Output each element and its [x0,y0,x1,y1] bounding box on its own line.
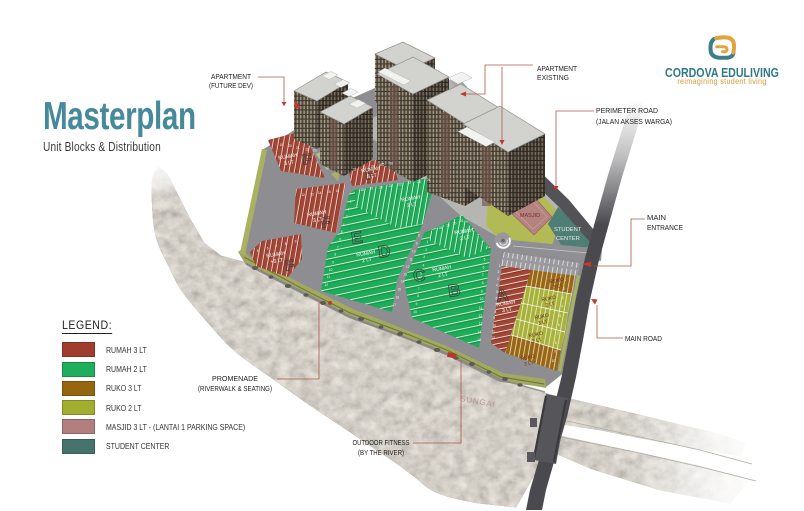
svg-text:10: 10 [480,297,484,301]
svg-text:9: 9 [493,316,495,320]
svg-text:4: 4 [343,223,345,227]
svg-text:15: 15 [477,338,481,342]
svg-text:23: 23 [313,149,317,153]
svg-text:B: B [447,280,462,301]
svg-text:9: 9 [295,240,297,244]
svg-text:11: 11 [479,306,483,310]
svg-text:4: 4 [561,305,563,309]
svg-text:25: 25 [381,162,385,166]
svg-text:10: 10 [329,268,333,272]
svg-text:D: D [377,241,392,262]
svg-text:APARTMENT: APARTMENT [537,64,577,73]
svg-text:7: 7 [482,273,484,277]
svg-text:12: 12 [325,283,329,287]
svg-text:19: 19 [369,187,373,191]
svg-text:3: 3 [423,255,425,259]
svg-text:APARTMENT: APARTMENT [211,72,251,81]
svg-text:14: 14 [478,330,482,334]
svg-text:1: 1 [426,240,428,244]
svg-text:3: 3 [497,277,499,281]
svg-text:MAIN: MAIN [647,213,666,222]
svg-text:24: 24 [417,180,421,184]
svg-text:20: 20 [288,144,292,148]
svg-text:21: 21 [296,146,300,150]
svg-text:9: 9 [416,242,418,246]
svg-text:3: 3 [562,296,564,300]
svg-text:7: 7 [337,245,339,249]
svg-text:8: 8 [418,234,420,238]
svg-text:7: 7 [557,332,559,336]
svg-text:11: 11 [409,257,413,261]
svg-text:22: 22 [398,183,402,187]
svg-text:10: 10 [493,323,497,327]
svg-text:5: 5 [484,257,486,261]
svg-text:7: 7 [418,287,420,291]
svg-text:9: 9 [416,302,418,306]
svg-text:2: 2 [498,270,500,274]
svg-text:(FUTURE DEV): (FUTURE DEV) [209,81,253,90]
svg-text:21: 21 [389,184,393,188]
svg-text:1: 1 [350,200,352,204]
svg-text:9: 9 [332,261,334,265]
svg-text:7: 7 [275,244,277,248]
svg-text:8: 8 [495,310,497,314]
svg-text:PERIMETER ROAD: PERIMETER ROAD [596,106,659,115]
svg-text:25: 25 [427,178,431,182]
svg-text:12: 12 [479,314,483,318]
svg-text:9: 9 [554,350,556,354]
svg-text:5: 5 [559,314,561,318]
svg-text:6: 6 [483,266,485,270]
svg-text:26: 26 [390,161,394,165]
svg-text:13: 13 [479,322,483,326]
svg-text:6: 6 [267,247,269,251]
svg-text:2: 2 [348,208,350,212]
svg-text:2: 2 [563,287,565,291]
svg-text:(JALAN AKSES WARGA): (JALAN AKSES WARGA) [596,117,672,126]
svg-text:8: 8 [285,242,287,246]
svg-text:1: 1 [564,278,566,282]
svg-text:18: 18 [438,226,442,230]
svg-text:18: 18 [360,188,364,192]
svg-text:8: 8 [555,341,557,345]
svg-text:11: 11 [492,329,496,333]
svg-text:STUDENT: STUDENT [554,227,582,233]
svg-text:10: 10 [552,359,556,363]
svg-text:16: 16 [336,189,340,193]
svg-text:5: 5 [341,230,343,234]
svg-text:9: 9 [481,289,483,293]
svg-text:C: C [412,265,427,286]
svg-text:11: 11 [327,275,331,279]
svg-text:CENTER: CENTER [556,236,580,242]
svg-text:8: 8 [482,281,484,285]
svg-text:MASJID: MASJID [520,213,540,219]
svg-text:MAIN ROAD: MAIN ROAD [625,334,662,343]
svg-text:12: 12 [491,336,495,340]
svg-text:13: 13 [310,192,314,196]
svg-text:14: 14 [401,280,405,284]
svg-text:19: 19 [280,143,284,147]
svg-text:10: 10 [414,310,418,314]
svg-text:6: 6 [339,238,341,242]
svg-text:3: 3 [346,215,348,219]
svg-text:12: 12 [406,265,410,269]
svg-text:2: 2 [425,248,427,252]
svg-text:22: 22 [353,167,357,171]
svg-text:15: 15 [327,190,331,194]
svg-text:13: 13 [403,273,407,277]
svg-text:20: 20 [379,186,383,190]
svg-text:1: 1 [499,264,501,268]
svg-text:14: 14 [318,191,322,195]
svg-text:6: 6 [558,323,560,327]
svg-text:8: 8 [417,294,419,298]
svg-text:15: 15 [397,287,401,291]
svg-text:10: 10 [412,250,416,254]
svg-text:EXISTING: EXISTING [537,73,569,82]
svg-text:12: 12 [301,193,305,197]
svg-text:20: 20 [453,222,457,226]
svg-text:19: 19 [446,224,450,228]
svg-text:ENTRANCE: ENTRANCE [647,223,683,232]
svg-text:17: 17 [392,303,396,307]
svg-text:23: 23 [408,181,412,185]
svg-text:5: 5 [257,249,259,253]
svg-text:8: 8 [334,253,336,257]
svg-text:16: 16 [396,295,400,299]
svg-text:21: 21 [460,219,464,223]
